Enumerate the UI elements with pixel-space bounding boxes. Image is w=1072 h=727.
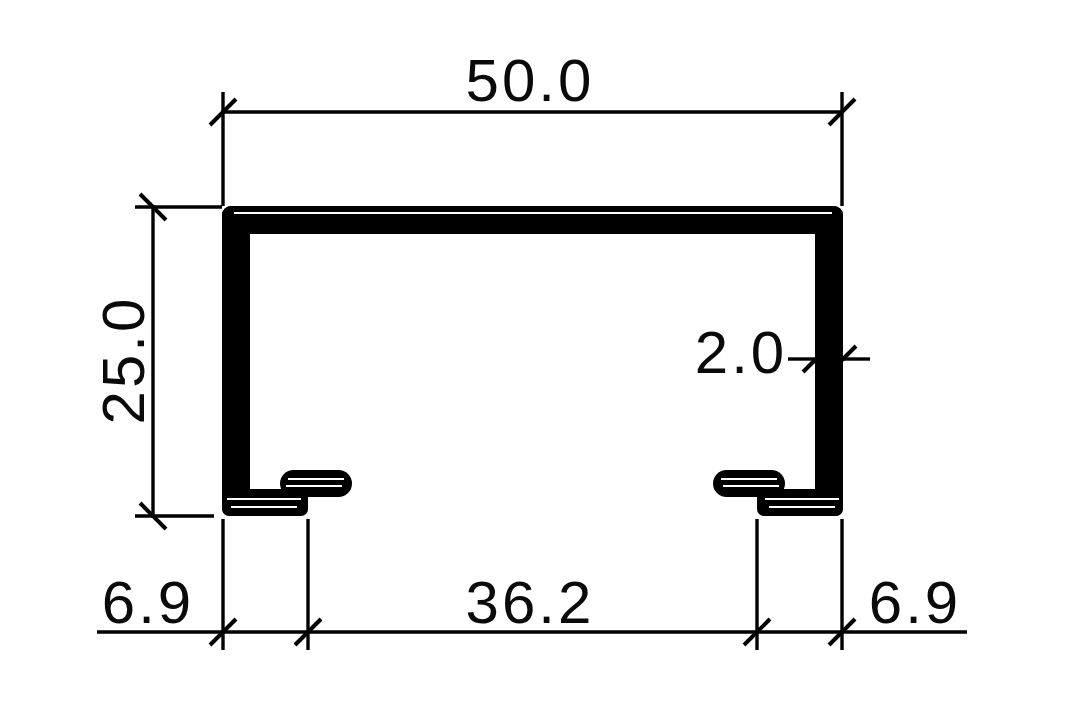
width-dimension-label: 50.0 — [430, 50, 630, 112]
profile-top-wall — [222, 206, 843, 234]
thickness-dimension-label: 2.0 — [641, 322, 841, 384]
bottom-right-flange-dimension-label: 6.9 — [815, 572, 1015, 634]
profile-left-hem-lip — [280, 470, 352, 497]
technical-drawing-canvas: 50.0 25.0 2.0 6.9 36.2 6.9 — [0, 0, 1072, 727]
profile-right-hem-lip — [713, 470, 785, 497]
height-dimension-label: 25.0 — [93, 260, 155, 460]
profile-left-wall — [222, 206, 250, 516]
bottom-left-flange-dimension-label: 6.9 — [48, 572, 248, 634]
bottom-opening-dimension-label: 36.2 — [430, 572, 630, 634]
